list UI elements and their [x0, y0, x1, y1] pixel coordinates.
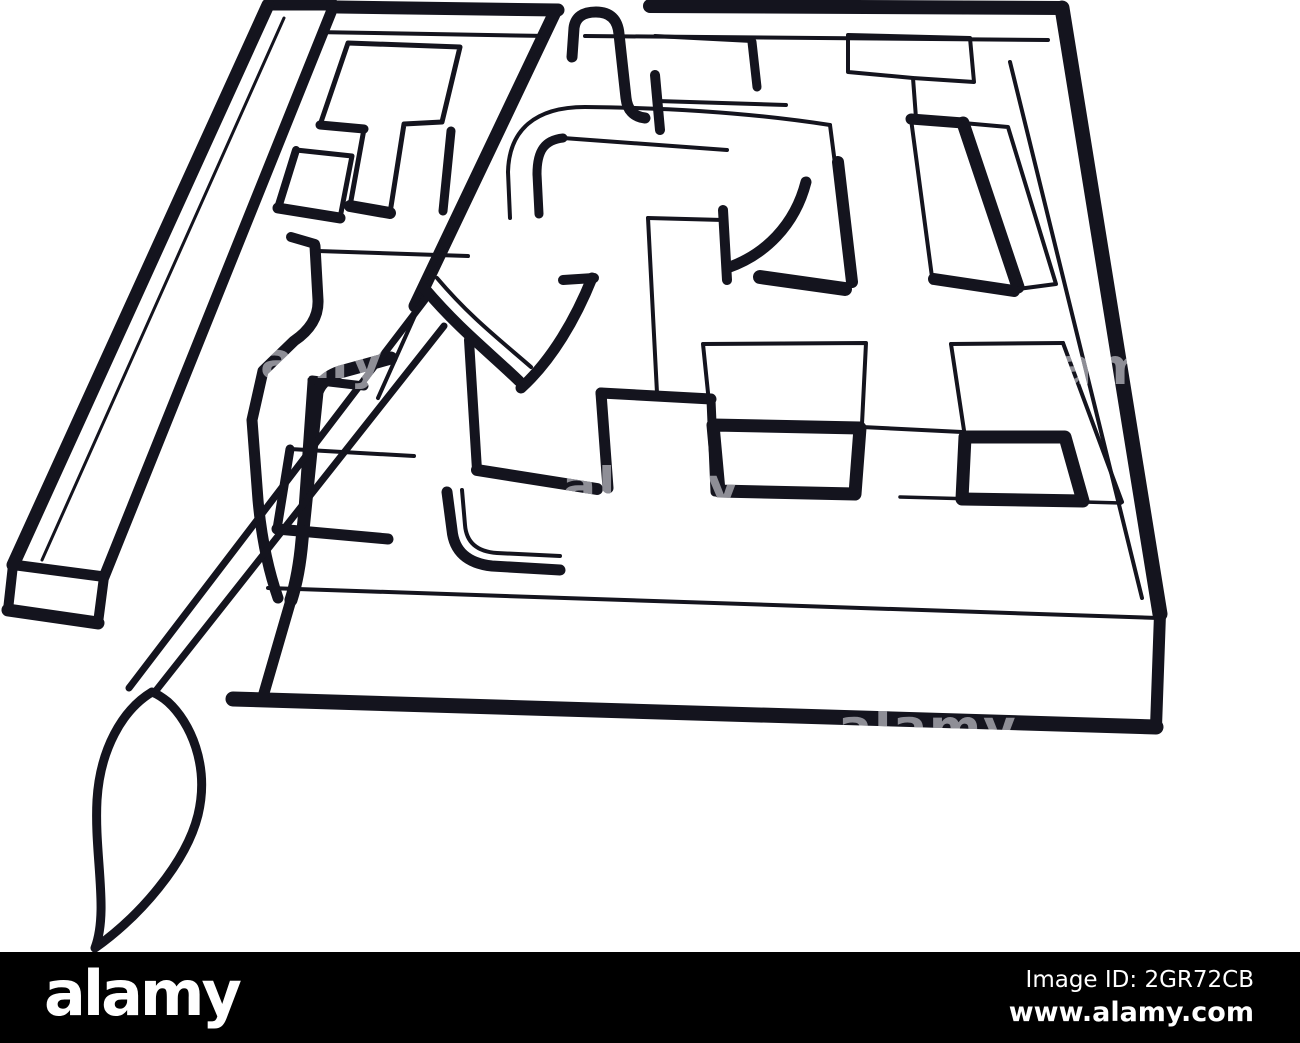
watermark-layer: alamy alamy alamy alamy alamy — [205, 332, 1300, 757]
footer-credits: Image ID: 2GR72CB www.alamy.com — [1009, 967, 1254, 1029]
footer-bar: alamy Image ID: 2GR72CB www.alamy.com — [0, 952, 1300, 1043]
website-url-text: www.alamy.com — [1009, 997, 1254, 1029]
watermark: alamy — [1003, 338, 1182, 396]
watermark: alamy — [562, 457, 741, 515]
watermark: alamy — [1220, 467, 1300, 525]
alamy-logo: alamy — [44, 963, 239, 1025]
watermark: alamy — [838, 699, 1017, 757]
stock-image-preview: alamy alamy alamy alamy alamy alamy Imag… — [0, 0, 1300, 1043]
brush-tip — [95, 692, 202, 948]
image-id-text: Image ID: 2GR72CB — [1009, 967, 1254, 994]
maze-illustration: alamy alamy alamy alamy alamy — [0, 0, 1300, 1043]
watermark: alamy — [205, 332, 384, 390]
